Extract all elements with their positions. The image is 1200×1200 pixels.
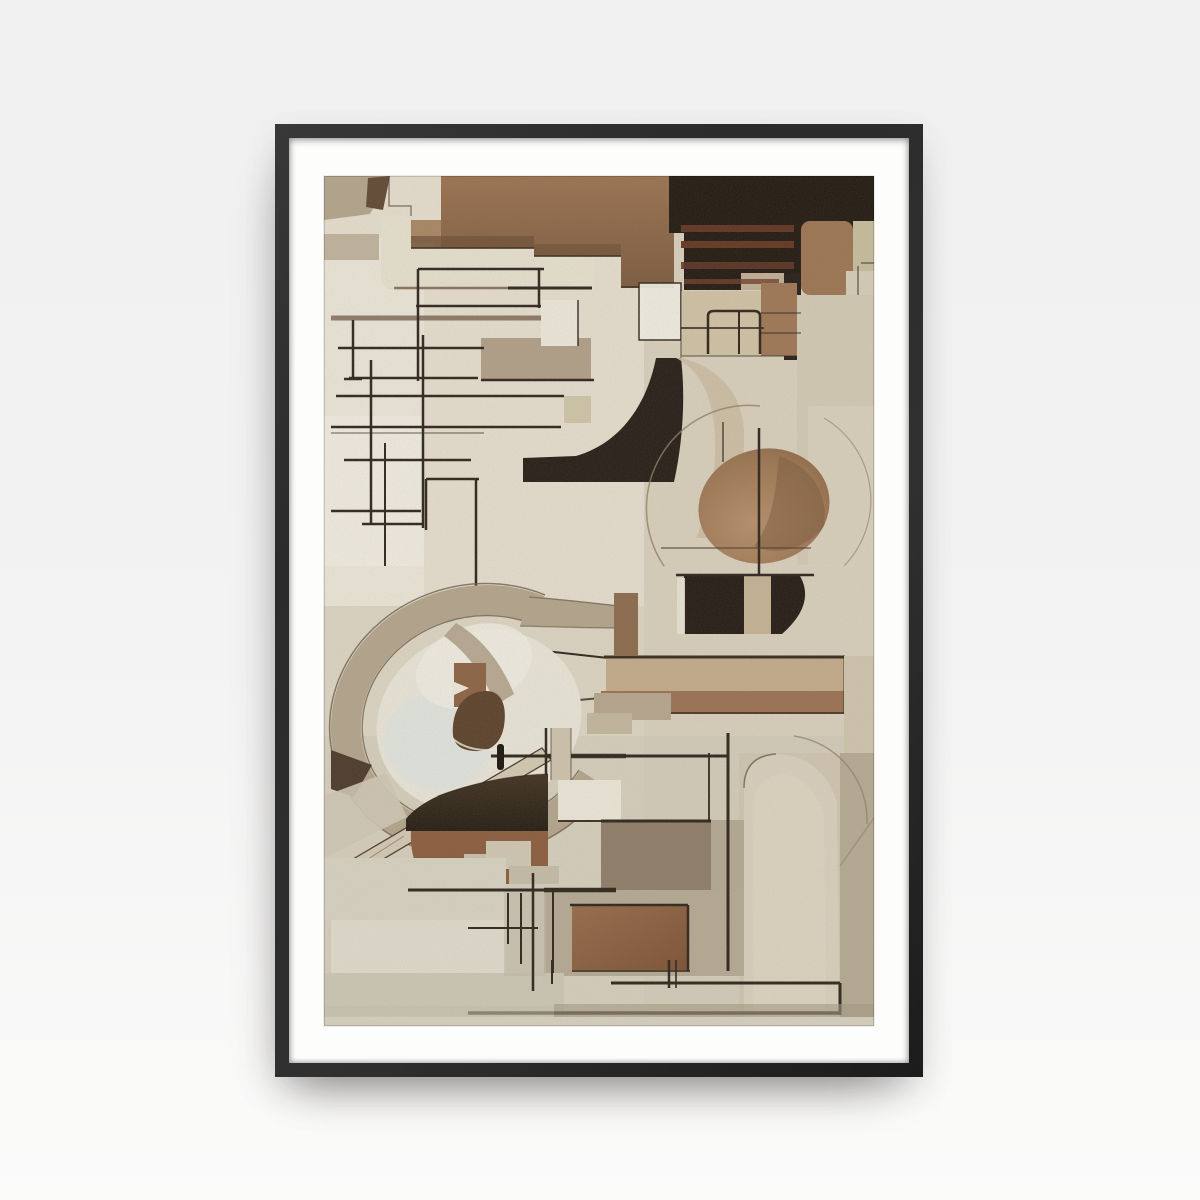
- wall-background: [0, 0, 1200, 1200]
- poster-frame: [275, 124, 923, 1077]
- mat-board: [289, 138, 909, 1063]
- abstract-artwork: [324, 176, 874, 1026]
- paper-texture: [324, 176, 874, 1026]
